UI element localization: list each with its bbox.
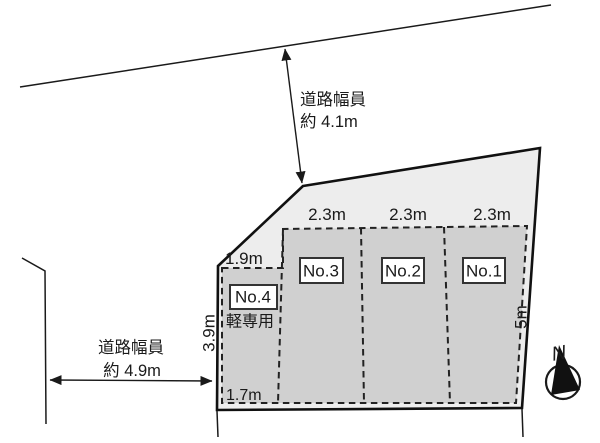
stall-no4-width-label: 1.9m [225,249,263,268]
stall-no1: No.1 [463,258,505,283]
stall-no3-label: No.3 [303,262,339,281]
parking-layout-diagram: No.1 No.2 No.3 No.4 軽専用 2.3m 2.3m 2.3m 1… [0,0,600,438]
stall-no1-width-label: 2.3m [473,205,511,224]
stall-no3-width-label: 2.3m [308,205,346,224]
stall-no4: No.4 軽専用 [226,285,277,331]
left-road-name: 道路幅員 [98,338,164,357]
stall-no4-note: 軽専用 [226,313,274,331]
stall-no2-width-label: 2.3m [389,205,427,224]
top-road-name: 道路幅員 [300,90,366,109]
stall-no1-label: No.1 [466,262,502,281]
left-road-width-value: 約 4.9m [103,361,161,380]
left-depth-label: 3.9m [200,314,219,352]
diagram-canvas: No.1 No.2 No.3 No.4 軽専用 2.3m 2.3m 2.3m 1… [0,0,600,438]
boundary-extension-left [217,411,218,437]
stall-no2: No.2 [382,258,424,283]
stall-no2-label: No.2 [385,262,421,281]
left-road-width-arrow [50,380,212,381]
stall-no3: No.3 [300,258,343,283]
right-depth-label: 5m [512,305,531,329]
bottom-width-label: 1.7m [226,387,262,404]
top-road-width-value: 約 4.1m [300,112,358,131]
boundary-extension-right [522,409,523,437]
stall-no4-label: No.4 [235,288,271,307]
